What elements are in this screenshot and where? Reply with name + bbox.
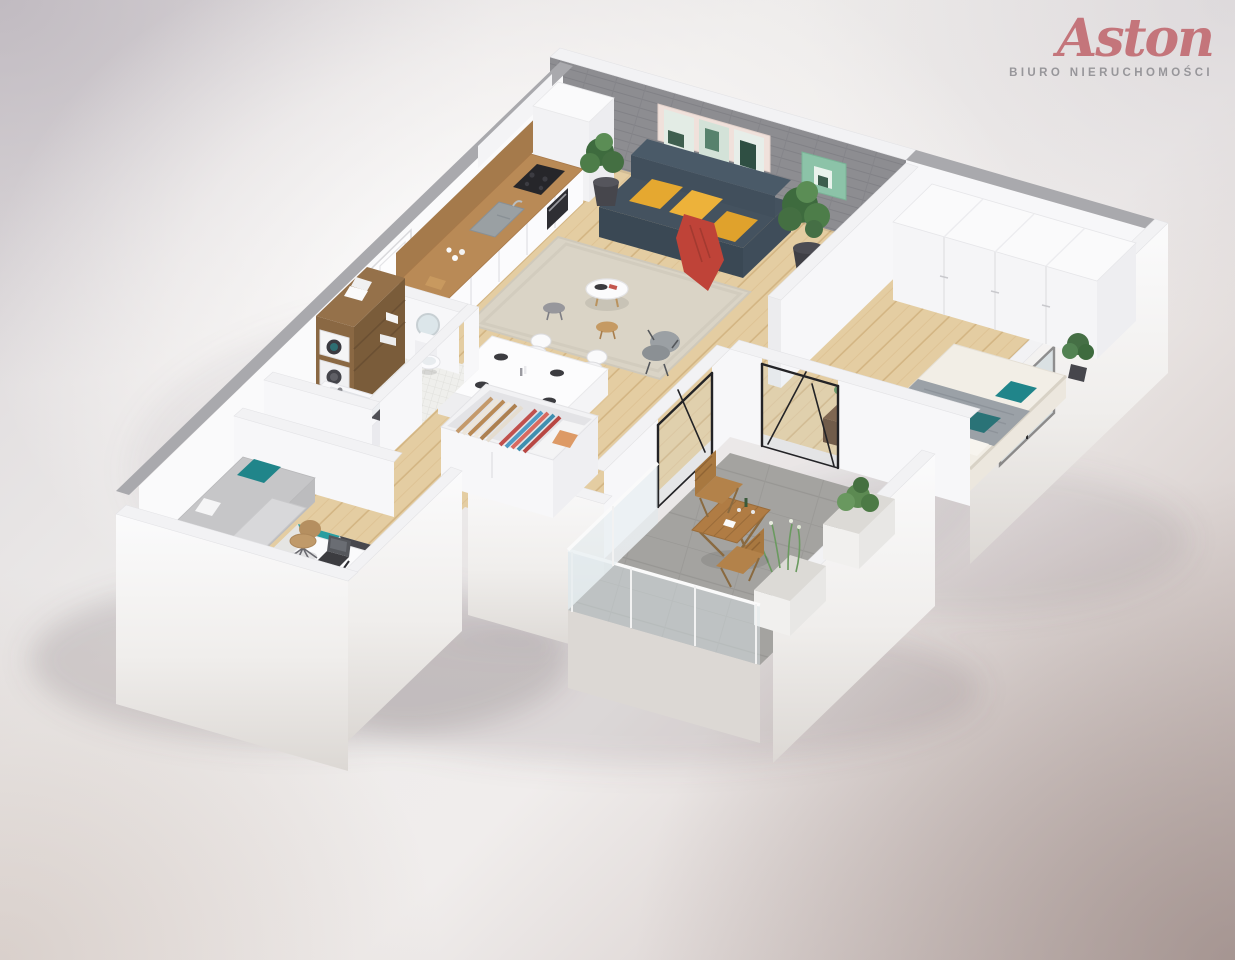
brand-tagline: BIURO NIERUCHOMOŚCI [1009,67,1213,79]
brand-name: Aston [1009,12,1213,66]
floor-plan-render: Aston BIURO NIERUCHOMOŚCI [0,0,1235,960]
apartment-isometric-svg [0,0,1235,960]
coffee-table [585,279,629,311]
round-mirror [417,314,439,336]
candlestick [520,368,522,376]
agency-logo: Aston BIURO NIERUCHOMOŚCI [1009,12,1213,79]
